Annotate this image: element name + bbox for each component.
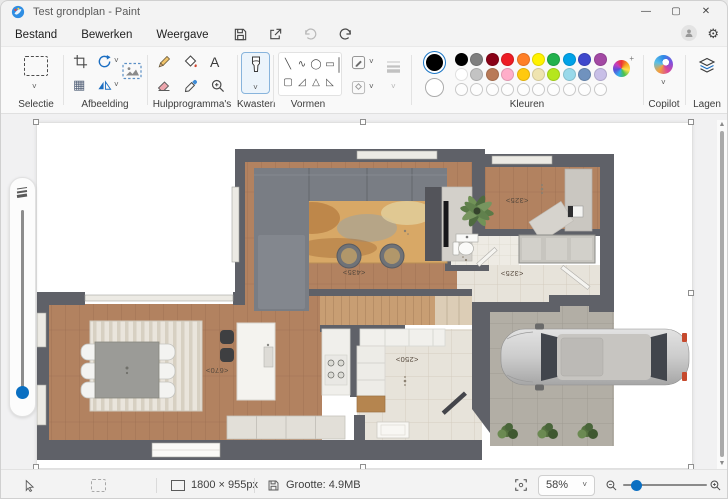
size-icon bbox=[15, 186, 29, 198]
group-brushes: ˅ Kwasten bbox=[237, 47, 273, 113]
eraser-tool-button[interactable] bbox=[156, 78, 172, 94]
magnifier-tool-button[interactable] bbox=[210, 78, 226, 94]
zoom-level-dropdown[interactable]: 58% ˅ bbox=[538, 470, 595, 499]
dim-label-hall: <325> bbox=[500, 269, 523, 278]
empty-color-swatch[interactable] bbox=[594, 83, 607, 96]
group-shapes: ╲∿◯▭▢◿△◺◇○□⇨⇧✦★♥ ˅ ˅ bbox=[273, 47, 411, 113]
empty-color-swatch[interactable] bbox=[470, 83, 483, 96]
selection-size-icon bbox=[91, 479, 106, 492]
shape-option[interactable]: ◿ bbox=[295, 76, 309, 89]
layers-group-label: Lagen bbox=[685, 99, 728, 110]
color-swatch[interactable] bbox=[547, 53, 560, 66]
group-selection: ˅ Selectie bbox=[9, 47, 63, 113]
file-size-indicator: Grootte: 4.9MB bbox=[267, 470, 361, 499]
fill-dropdown-chevron[interactable]: ˅ bbox=[369, 83, 374, 91]
color-swatch[interactable] bbox=[532, 68, 545, 81]
thickness-icon bbox=[385, 59, 402, 74]
pencil-tool-button[interactable] bbox=[156, 54, 172, 70]
maximize-button[interactable]: ▢ bbox=[661, 1, 691, 22]
group-copilot: ˅ Copilot bbox=[643, 47, 685, 113]
image-selection-icon bbox=[121, 60, 143, 82]
canvas-size-indicator: 1800 × 955px bbox=[171, 470, 258, 499]
close-button[interactable]: ✕ bbox=[691, 1, 721, 22]
settings-button[interactable]: ⚙ bbox=[707, 27, 719, 40]
resize-button[interactable]: ▦ bbox=[73, 78, 85, 91]
rotate-icon bbox=[97, 54, 112, 69]
drawing-canvas[interactable]: <435> <325> <325> <670> <250> bbox=[36, 122, 693, 469]
brushes-button[interactable]: ˅ bbox=[241, 52, 270, 94]
color-swatch[interactable] bbox=[501, 68, 514, 81]
empty-color-swatch[interactable] bbox=[532, 83, 545, 96]
color-swatch[interactable] bbox=[486, 68, 499, 81]
color-swatch[interactable] bbox=[470, 53, 483, 66]
flip-dropdown-chevron[interactable]: ˅ bbox=[114, 81, 119, 89]
shape-outline-button[interactable] bbox=[351, 55, 366, 70]
color-swatch[interactable] bbox=[501, 53, 514, 66]
scroll-up-arrow[interactable]: ▲ bbox=[717, 121, 727, 129]
fill-tool-button[interactable] bbox=[183, 54, 199, 70]
scroll-down-arrow[interactable]: ▼ bbox=[717, 460, 727, 468]
layers-icon bbox=[697, 56, 717, 76]
copilot-button[interactable] bbox=[654, 55, 673, 74]
shape-option[interactable]: ╲ bbox=[281, 58, 295, 71]
canvas-size-text: 1800 × 955px bbox=[191, 479, 258, 491]
zoom-slider[interactable] bbox=[623, 470, 707, 499]
outline-icon bbox=[351, 55, 366, 70]
line-thickness-button[interactable] bbox=[385, 59, 402, 74]
text-tool-icon: A bbox=[210, 54, 219, 70]
empty-color-swatch[interactable] bbox=[486, 83, 499, 96]
zoom-slider-track[interactable] bbox=[623, 484, 707, 486]
brush-size-slider[interactable] bbox=[9, 177, 36, 417]
color-swatch[interactable] bbox=[578, 68, 591, 81]
color-swatch[interactable] bbox=[594, 68, 607, 81]
color2-swatch[interactable] bbox=[425, 78, 444, 97]
color-swatch[interactable] bbox=[486, 53, 499, 66]
copilot-group-label: Copilot bbox=[643, 99, 685, 110]
scrollbar-thumb[interactable] bbox=[720, 131, 724, 457]
palette-row-1 bbox=[455, 53, 607, 66]
color-swatch[interactable] bbox=[547, 68, 560, 81]
palette-row-3 bbox=[455, 83, 607, 96]
color-swatch[interactable] bbox=[532, 53, 545, 66]
shape-option[interactable]: △ bbox=[309, 76, 323, 89]
save-button[interactable] bbox=[228, 26, 254, 44]
resize-icon: ▦ bbox=[73, 78, 85, 91]
empty-color-swatch[interactable] bbox=[563, 83, 576, 96]
selection-rectangle-icon bbox=[24, 56, 48, 76]
shape-option[interactable]: ⇨ bbox=[323, 94, 337, 96]
paint-bucket-icon bbox=[183, 54, 199, 70]
floorplan-image: <435> <325> <325> <670> <250> bbox=[37, 123, 692, 468]
copilot-icon bbox=[654, 55, 673, 74]
eraser-icon bbox=[156, 78, 172, 94]
car bbox=[501, 324, 689, 391]
color-swatch[interactable] bbox=[578, 53, 591, 66]
canvas-size-icon bbox=[171, 480, 185, 491]
copilot-dropdown-chevron[interactable]: ˅ bbox=[661, 79, 666, 87]
undo-icon bbox=[303, 27, 318, 42]
color-swatch[interactable] bbox=[455, 68, 468, 81]
brushes-dropdown-chevron[interactable]: ˅ bbox=[253, 84, 258, 92]
empty-color-swatch[interactable] bbox=[517, 83, 530, 96]
menu-weergave[interactable]: Weergave bbox=[146, 26, 218, 44]
thickness-dropdown-chevron[interactable]: ˅ bbox=[391, 83, 396, 91]
empty-color-swatch[interactable] bbox=[455, 83, 468, 96]
color-swatch[interactable] bbox=[455, 53, 468, 66]
fit-to-screen-button[interactable] bbox=[514, 470, 528, 499]
selection-group-label: Selectie bbox=[9, 99, 63, 110]
colors-group-label: Kleuren bbox=[411, 99, 643, 110]
redo-button[interactable] bbox=[333, 26, 359, 44]
rotate-dropdown-chevron[interactable]: ˅ bbox=[114, 57, 119, 65]
dim-label-study: <325> bbox=[505, 196, 528, 205]
menu-bar: Bestand Bewerken Weergave bbox=[1, 23, 727, 46]
menu-bestand[interactable]: Bestand bbox=[5, 26, 67, 44]
dim-label-dining: <670> bbox=[205, 366, 228, 375]
toolbar-ribbon: ˅ Selectie ˅ ▦ bbox=[1, 46, 727, 114]
color-swatch[interactable] bbox=[470, 68, 483, 81]
canvas-handle-top-left[interactable] bbox=[33, 119, 39, 125]
status-bar: 1800 × 955px Grootte: 4.9MB 58% ˅ bbox=[1, 469, 727, 499]
shape-option[interactable]: ▢ bbox=[281, 76, 295, 89]
file-size-text: Grootte: 4.9MB bbox=[286, 479, 361, 491]
minimize-button[interactable]: — bbox=[631, 1, 661, 22]
color-picker-button[interactable] bbox=[183, 78, 199, 94]
title-bar: Test grondplan - Paint — ▢ ✕ bbox=[1, 1, 727, 23]
redo-icon bbox=[338, 27, 353, 42]
magnifier-icon bbox=[210, 78, 226, 94]
account-button[interactable] bbox=[681, 25, 697, 41]
pencil-icon bbox=[156, 54, 172, 70]
shape-option[interactable]: ○ bbox=[295, 94, 309, 96]
group-layers: Lagen bbox=[685, 47, 728, 113]
color-swatch[interactable] bbox=[563, 53, 576, 66]
cursor-icon bbox=[23, 479, 36, 492]
cursor-position-indicator bbox=[23, 470, 36, 499]
file-size-icon bbox=[267, 479, 280, 492]
color1-swatch[interactable] bbox=[424, 52, 445, 73]
fit-screen-icon bbox=[514, 478, 528, 492]
brush-icon bbox=[248, 56, 264, 73]
selection-size-indicator bbox=[91, 470, 106, 499]
shape-option[interactable]: ∿ bbox=[295, 58, 309, 71]
color-swatch[interactable] bbox=[594, 53, 607, 66]
color-swatch[interactable] bbox=[517, 53, 530, 66]
share-button[interactable] bbox=[263, 26, 289, 44]
dim-label-living: <435> bbox=[342, 268, 365, 277]
empty-color-swatch[interactable] bbox=[501, 83, 514, 96]
paint-app-icon bbox=[11, 5, 25, 19]
workspace: <435> <325> <325> <670> <250> bbox=[1, 114, 728, 469]
empty-color-swatch[interactable] bbox=[547, 83, 560, 96]
empty-color-swatch[interactable] bbox=[578, 83, 591, 96]
layers-button[interactable] bbox=[697, 56, 717, 76]
zoom-out-icon bbox=[605, 479, 618, 492]
vertical-scrollbar[interactable]: ▲ ▼ bbox=[717, 120, 727, 469]
shapes-gallery[interactable]: ╲∿◯▭▢◿△◺◇○□⇨⇧✦★♥ bbox=[278, 52, 342, 96]
paint-window: Test grondplan - Paint — ▢ ✕ Bestand Bew… bbox=[0, 0, 728, 499]
brushes-group-label: Kwasten bbox=[237, 99, 273, 110]
tools-group-label: Hulpprogramma's bbox=[147, 99, 237, 110]
shape-option[interactable]: □ bbox=[309, 94, 323, 96]
slider-track[interactable] bbox=[21, 210, 24, 392]
shape-fill-button[interactable] bbox=[351, 80, 366, 95]
menu-bewerken[interactable]: Bewerken bbox=[71, 26, 142, 44]
flip-icon bbox=[97, 78, 112, 93]
color-swatch[interactable] bbox=[563, 68, 576, 81]
shape-option[interactable]: ▭ bbox=[323, 58, 337, 71]
text-tool-button[interactable]: A bbox=[210, 54, 219, 70]
eyedropper-icon bbox=[183, 78, 199, 94]
edit-colors-button[interactable] bbox=[613, 60, 630, 77]
zoom-slider-thumb[interactable] bbox=[631, 480, 642, 491]
share-icon bbox=[268, 27, 283, 42]
group-image: ˅ ▦ ˅ Afbeelding bbox=[63, 47, 147, 113]
palette-row-2 bbox=[455, 68, 607, 81]
save-icon bbox=[233, 27, 248, 42]
canvas-handle-right-middle[interactable] bbox=[688, 290, 694, 296]
selection-dropdown-chevron[interactable]: ˅ bbox=[32, 83, 37, 91]
dim-label-entry: <250> bbox=[395, 355, 418, 364]
flip-button[interactable] bbox=[97, 78, 112, 93]
zoom-in-button[interactable] bbox=[709, 470, 722, 499]
group-tools: A Hulpprogramma's bbox=[147, 47, 237, 113]
person-icon bbox=[684, 28, 694, 38]
zoom-level-value: 58% bbox=[546, 479, 568, 491]
shape-option[interactable]: ◇ bbox=[281, 94, 295, 96]
canvas-handle-top-right[interactable] bbox=[688, 119, 694, 125]
rotate-button[interactable] bbox=[97, 54, 112, 69]
undo-button[interactable] bbox=[298, 26, 324, 44]
zoom-in-icon bbox=[709, 479, 722, 492]
outline-dropdown-chevron[interactable]: ˅ bbox=[369, 58, 374, 66]
window-title: Test grondplan - Paint bbox=[33, 6, 140, 18]
rect-select-button[interactable] bbox=[24, 56, 48, 76]
group-colors: Kleuren bbox=[411, 47, 643, 113]
crop-icon bbox=[73, 54, 88, 69]
crop-button[interactable] bbox=[73, 54, 88, 69]
fill-style-icon bbox=[351, 80, 366, 95]
canvas-handle-top-middle[interactable] bbox=[360, 119, 366, 125]
image-group-label: Afbeelding bbox=[63, 99, 147, 110]
zoom-dropdown-chevron: ˅ bbox=[582, 481, 587, 489]
color-swatch[interactable] bbox=[517, 68, 530, 81]
shapes-group-label: Vormen bbox=[273, 99, 343, 110]
zoom-out-button[interactable] bbox=[605, 470, 618, 499]
remove-background-button[interactable] bbox=[121, 60, 143, 82]
shape-option[interactable]: ◺ bbox=[323, 76, 337, 89]
shape-option[interactable]: ◯ bbox=[309, 58, 323, 71]
shapes-scrollbar[interactable] bbox=[338, 57, 341, 73]
dining-furniture bbox=[81, 321, 275, 411]
slider-thumb[interactable] bbox=[16, 386, 29, 399]
